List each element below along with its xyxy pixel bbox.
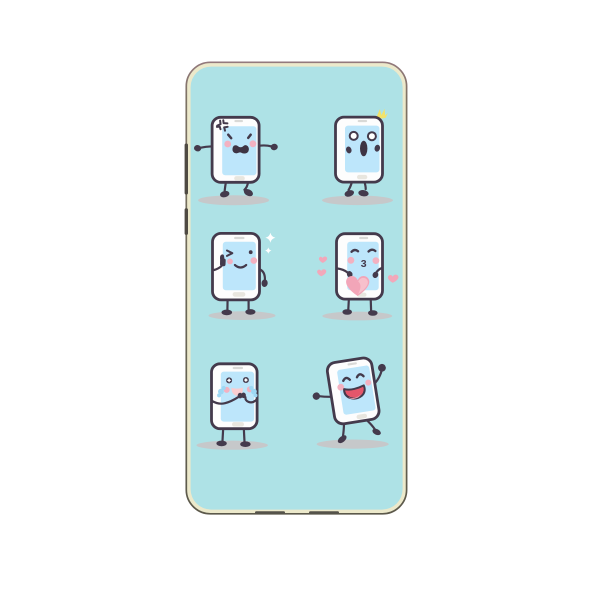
- svg-text:3: 3: [361, 258, 367, 270]
